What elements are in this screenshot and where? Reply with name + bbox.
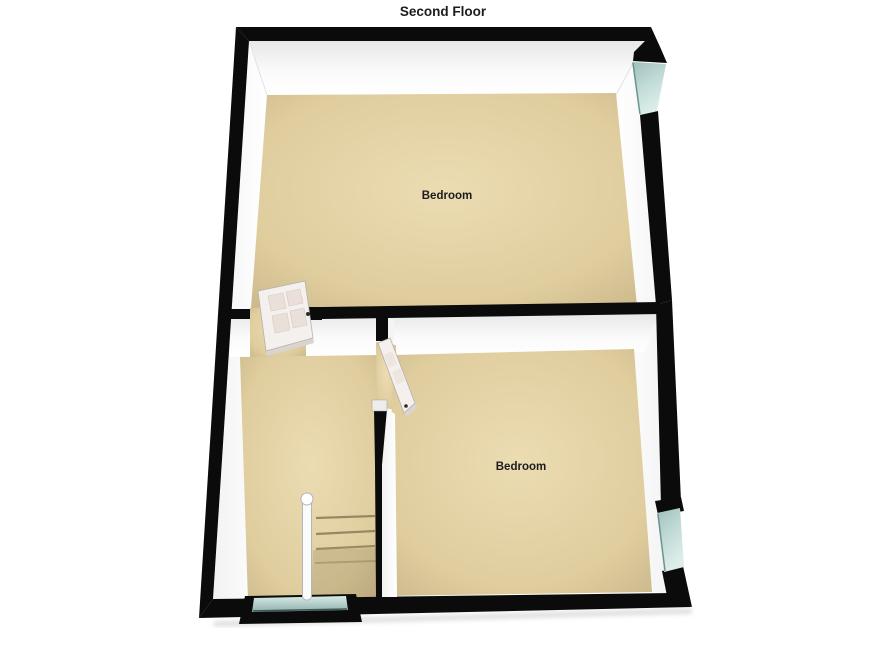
stairs-lower-shading <box>311 548 380 600</box>
door-panel <box>290 308 307 328</box>
door-panel <box>286 289 303 306</box>
banister <box>301 493 313 600</box>
banister-rail <box>303 500 312 600</box>
middle-wall-left <box>228 309 250 319</box>
door-hinge-dot <box>306 312 310 316</box>
page-title: Second Floor <box>400 4 487 19</box>
floor-plan-drawing: Second Floor Bedroom Bedroom <box>0 0 888 646</box>
banister-knob <box>301 493 313 505</box>
door-panel <box>272 313 290 333</box>
divider-wall-cap <box>372 400 387 411</box>
north-wall <box>236 27 651 41</box>
room-label-bedroom-bottom: Bedroom <box>496 461 546 473</box>
door-handle-dot <box>404 404 408 408</box>
door-top-bedroom <box>258 281 314 356</box>
divider-wall-stub <box>376 316 388 341</box>
north-wall-face <box>249 41 645 95</box>
room-label-bedroom-top: Bedroom <box>422 190 472 202</box>
floor-plan-page: Second Floor Bedroom Bedroom <box>0 0 888 646</box>
door-panel <box>268 293 286 311</box>
